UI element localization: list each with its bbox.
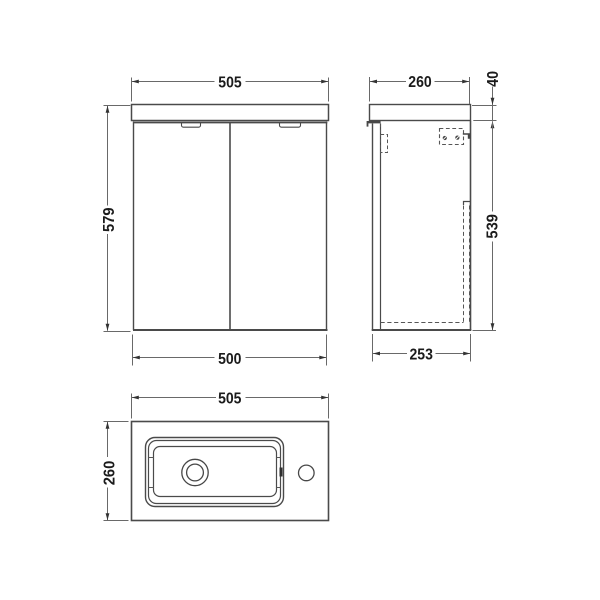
svg-text:40: 40 xyxy=(485,71,502,87)
svg-text:500: 500 xyxy=(218,351,241,368)
svg-text:505: 505 xyxy=(218,391,242,408)
svg-text:260: 260 xyxy=(408,74,431,91)
svg-text:579: 579 xyxy=(101,207,118,232)
svg-text:260: 260 xyxy=(102,461,119,486)
svg-text:539: 539 xyxy=(484,214,501,239)
svg-text:505: 505 xyxy=(218,74,242,91)
svg-text:253: 253 xyxy=(410,346,434,363)
